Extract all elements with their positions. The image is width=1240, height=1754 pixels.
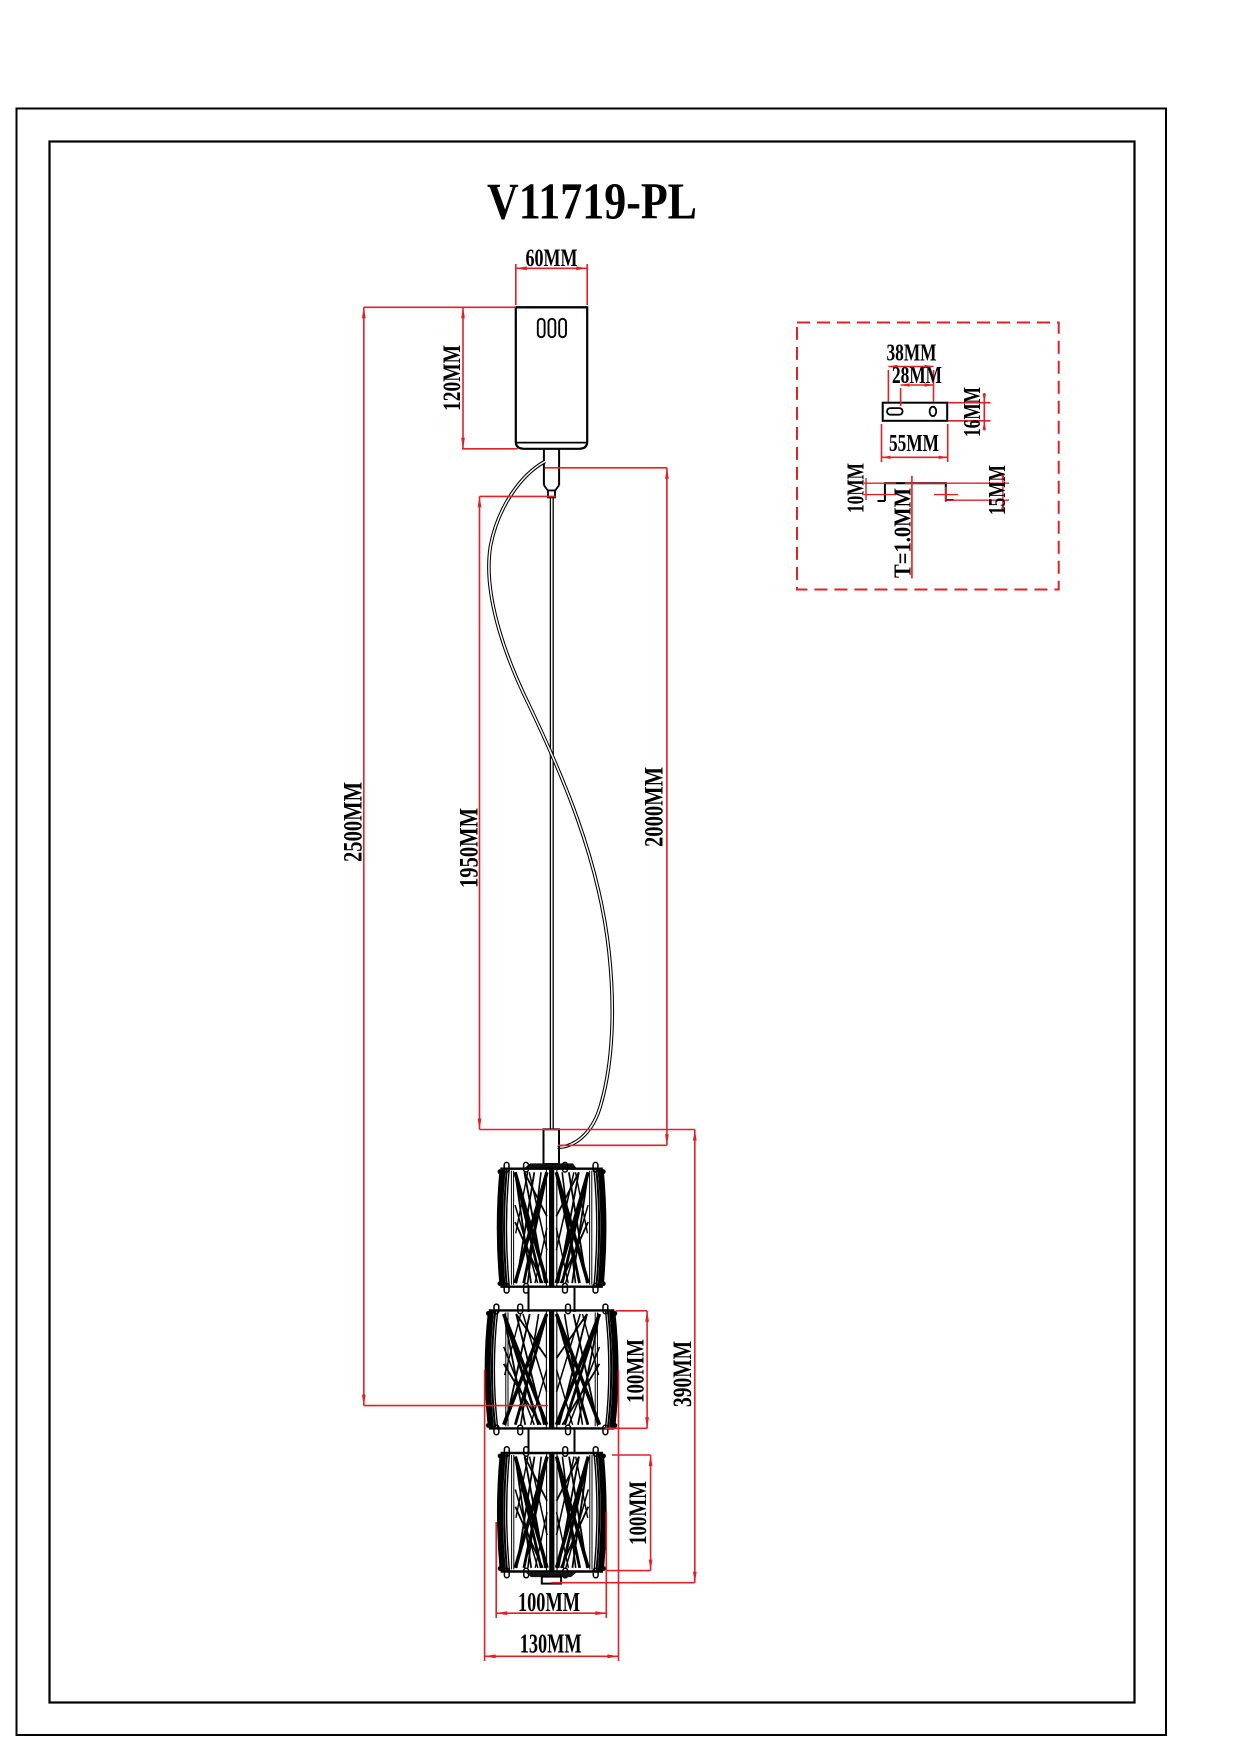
svg-text:T=1.0MM: T=1.0MM <box>891 488 917 578</box>
svg-text:130MM: 130MM <box>520 1629 582 1659</box>
svg-text:100MM: 100MM <box>518 1587 580 1617</box>
svg-text:15MM: 15MM <box>985 465 1011 515</box>
svg-text:10MM: 10MM <box>844 463 870 513</box>
svg-text:100MM: 100MM <box>623 1339 650 1403</box>
svg-text:2500MM: 2500MM <box>338 782 368 862</box>
svg-text:390MM: 390MM <box>667 1341 697 1407</box>
svg-text:16MM: 16MM <box>960 387 986 437</box>
svg-text:28MM: 28MM <box>892 363 942 389</box>
svg-text:1950MM: 1950MM <box>454 808 484 888</box>
svg-text:55MM: 55MM <box>889 431 939 457</box>
svg-text:2000MM: 2000MM <box>639 767 669 847</box>
svg-text:60MM: 60MM <box>526 245 578 272</box>
svg-text:100MM: 100MM <box>625 1481 652 1545</box>
svg-text:120MM: 120MM <box>439 345 466 411</box>
svg-text:V11719-PL: V11719-PL <box>487 174 697 231</box>
